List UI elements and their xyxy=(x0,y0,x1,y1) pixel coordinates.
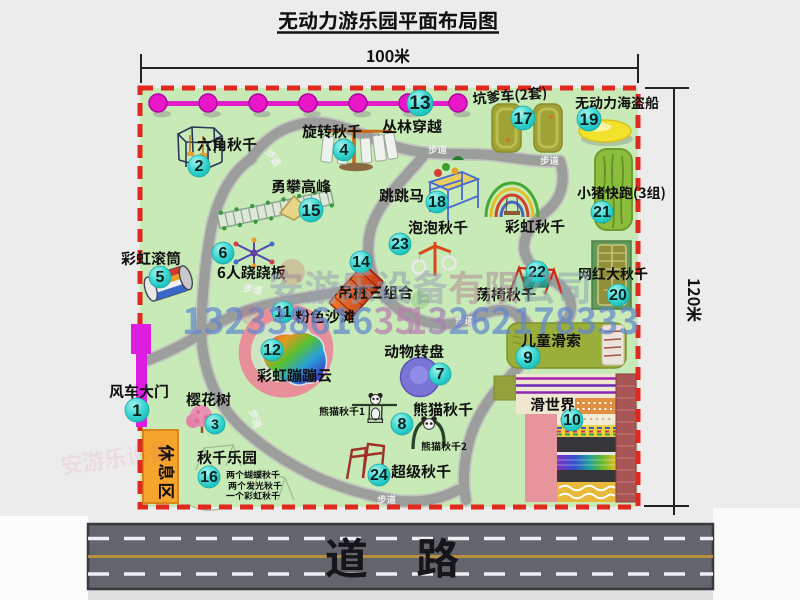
svg-text:7: 7 xyxy=(436,366,445,383)
svg-text:18: 18 xyxy=(428,194,446,211)
svg-text:13: 13 xyxy=(409,93,430,114)
svg-text:16: 16 xyxy=(200,469,218,486)
svg-text:17: 17 xyxy=(514,109,533,128)
svg-text:6: 6 xyxy=(219,245,228,262)
svg-text:14: 14 xyxy=(352,254,370,271)
svg-text:3: 3 xyxy=(211,416,219,432)
svg-text:21: 21 xyxy=(593,204,611,221)
svg-text:20: 20 xyxy=(609,287,627,304)
svg-text:10: 10 xyxy=(563,412,581,429)
svg-text:8: 8 xyxy=(398,416,407,433)
svg-text:12: 12 xyxy=(263,342,281,359)
svg-text:9: 9 xyxy=(523,348,532,367)
svg-text:4: 4 xyxy=(340,142,349,159)
svg-text:2: 2 xyxy=(195,158,204,175)
svg-text:23: 23 xyxy=(391,236,409,253)
svg-text:15: 15 xyxy=(302,201,321,220)
svg-text:1: 1 xyxy=(132,401,141,420)
svg-text:24: 24 xyxy=(370,467,388,484)
svg-text:5: 5 xyxy=(156,269,165,286)
svg-text:19: 19 xyxy=(580,110,599,129)
